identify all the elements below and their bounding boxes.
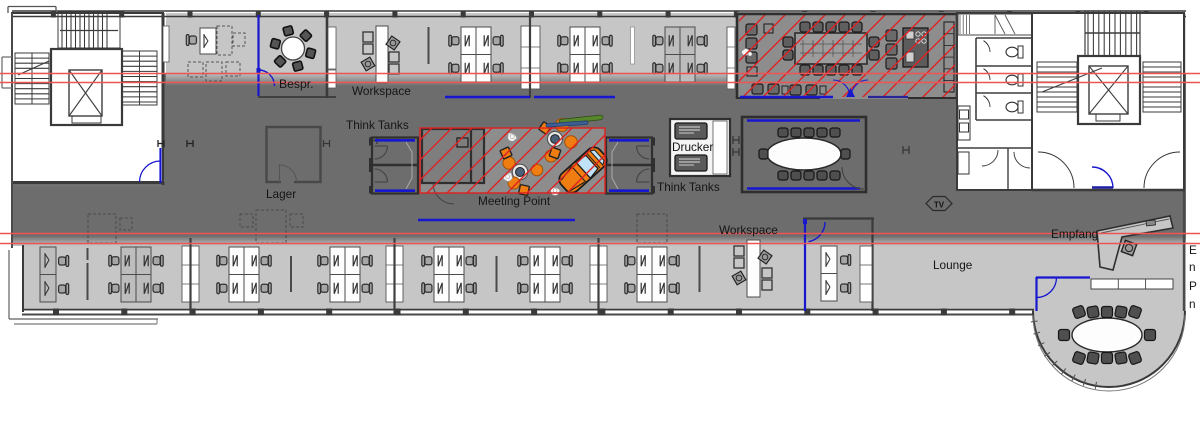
svg-text:Bespr.: Bespr.: [279, 77, 314, 91]
svg-text:Think Tanks: Think Tanks: [657, 180, 720, 194]
svg-text:n: n: [1189, 297, 1196, 311]
svg-text:Meeting Point: Meeting Point: [478, 194, 551, 208]
svg-text:n: n: [1189, 260, 1196, 274]
svg-text:Lounge: Lounge: [933, 258, 973, 272]
svg-text:Lager: Lager: [266, 187, 296, 201]
svg-text:Workspace: Workspace: [352, 84, 411, 98]
svg-text:TV: TV: [934, 201, 945, 210]
svg-text:P: P: [1189, 279, 1197, 293]
svg-text:Empfang: Empfang: [1051, 227, 1098, 241]
svg-text:E: E: [1189, 243, 1197, 257]
svg-text:Think Tanks: Think Tanks: [346, 118, 409, 132]
svg-text:Drucker: Drucker: [672, 140, 713, 154]
svg-text:Workspace: Workspace: [719, 223, 778, 237]
